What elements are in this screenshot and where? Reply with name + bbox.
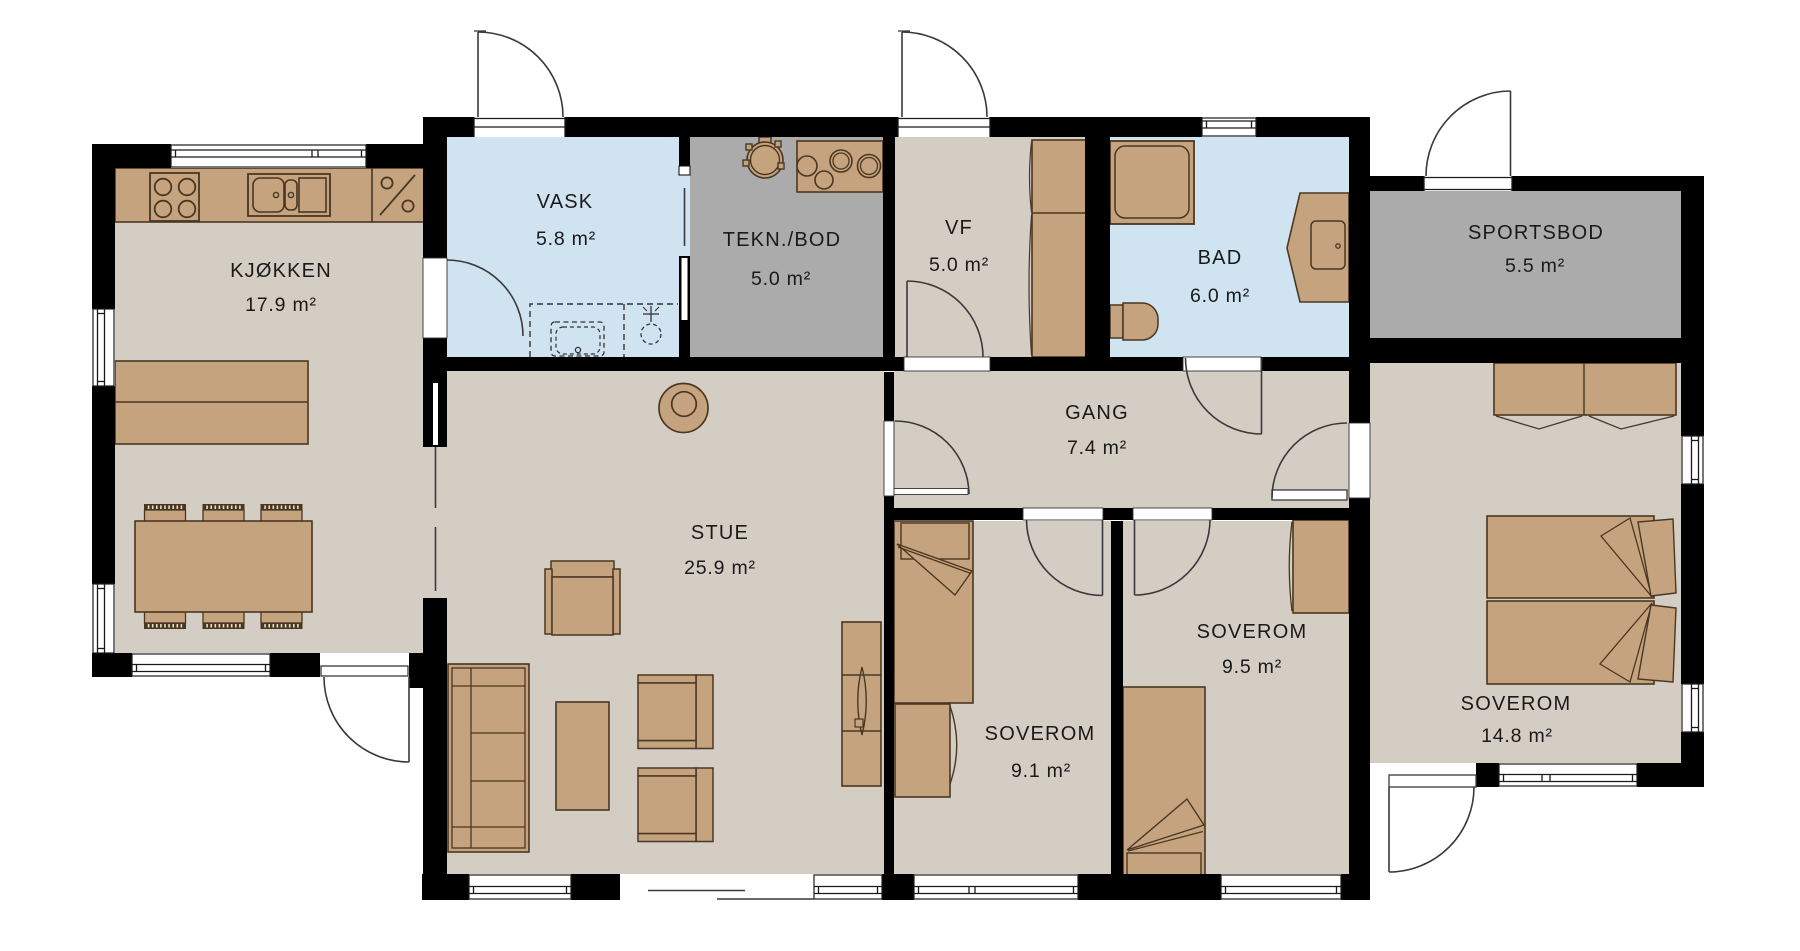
svg-text:SOVEROM: SOVEROM — [1461, 693, 1572, 715]
svg-text:SOVEROM: SOVEROM — [985, 723, 1096, 745]
svg-text:5.0 m²: 5.0 m² — [751, 268, 811, 290]
svg-text:STUE: STUE — [691, 522, 749, 544]
svg-text:GANG: GANG — [1065, 402, 1129, 424]
svg-text:TEKN./BOD: TEKN./BOD — [723, 229, 842, 251]
svg-text:KJØKKEN: KJØKKEN — [230, 260, 332, 282]
svg-text:VF: VF — [945, 217, 973, 239]
svg-text:VASK: VASK — [537, 191, 594, 213]
svg-text:17.9 m²: 17.9 m² — [245, 294, 317, 316]
svg-text:14.8 m²: 14.8 m² — [1481, 725, 1553, 747]
svg-text:BAD: BAD — [1198, 247, 1243, 269]
svg-text:5.8 m²: 5.8 m² — [536, 228, 596, 250]
svg-text:5.5 m²: 5.5 m² — [1505, 255, 1565, 277]
svg-text:7.4 m²: 7.4 m² — [1067, 437, 1127, 459]
svg-text:9.1 m²: 9.1 m² — [1011, 760, 1071, 782]
svg-text:6.0 m²: 6.0 m² — [1190, 285, 1250, 307]
svg-text:25.9 m²: 25.9 m² — [684, 557, 756, 579]
svg-text:SOVEROM: SOVEROM — [1197, 621, 1308, 643]
svg-text:SPORTSBOD: SPORTSBOD — [1468, 222, 1604, 244]
svg-text:9.5 m²: 9.5 m² — [1222, 656, 1282, 678]
svg-text:5.0 m²: 5.0 m² — [929, 254, 989, 276]
